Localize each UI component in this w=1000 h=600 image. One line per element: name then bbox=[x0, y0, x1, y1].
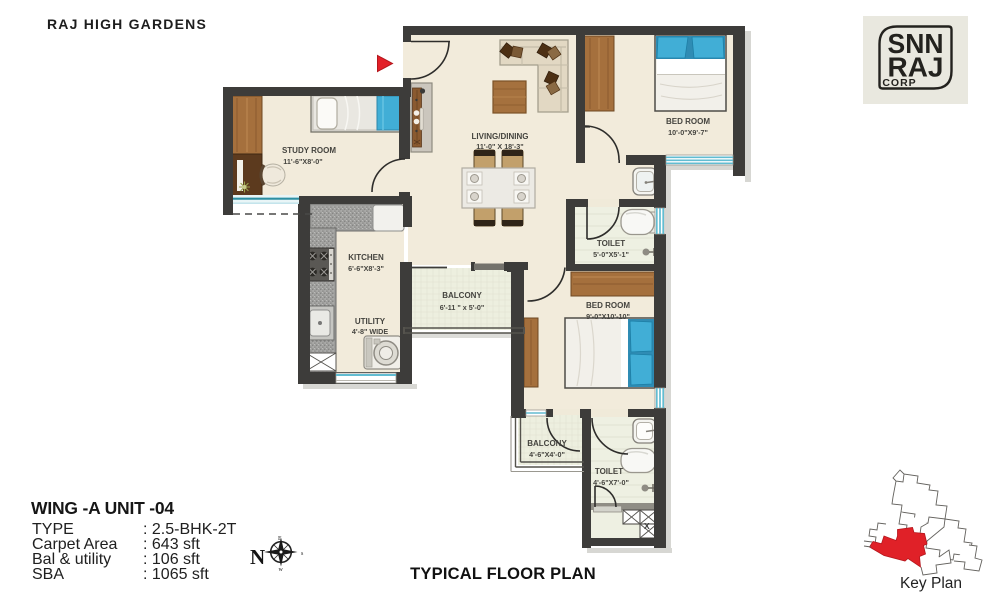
svg-text:BALCONY: BALCONY bbox=[527, 439, 567, 448]
svg-text:BALCONY: BALCONY bbox=[442, 291, 482, 300]
svg-text:4'-8" WIDE: 4'-8" WIDE bbox=[352, 327, 388, 336]
svg-text:9'-0"X10'-10": 9'-0"X10'-10" bbox=[586, 312, 630, 321]
svg-text:: 1065 sft: : 1065 sft bbox=[143, 566, 209, 583]
svg-text:TOILET: TOILET bbox=[597, 239, 625, 248]
svg-text:X: X bbox=[644, 521, 650, 531]
svg-text:5'-0"X5'-1": 5'-0"X5'-1" bbox=[593, 250, 629, 259]
svg-text:UTILITY: UTILITY bbox=[355, 317, 386, 326]
svg-text:11'-6"X8'-0": 11'-6"X8'-0" bbox=[283, 157, 322, 166]
svg-text:STUDY ROOM: STUDY ROOM bbox=[282, 146, 336, 155]
svg-text:RAJ HIGH GARDENS: RAJ HIGH GARDENS bbox=[47, 16, 207, 32]
svg-text:LIVING/DINING: LIVING/DINING bbox=[472, 132, 529, 141]
svg-text:CORP: CORP bbox=[882, 77, 916, 89]
svg-text:11'-0" X 18'-3": 11'-0" X 18'-3" bbox=[476, 142, 523, 151]
svg-text:4'-6"X4'-0": 4'-6"X4'-0" bbox=[529, 450, 565, 459]
svg-text:TOILET: TOILET bbox=[595, 467, 623, 476]
svg-text:N: N bbox=[250, 545, 265, 569]
svg-text:BED ROOM: BED ROOM bbox=[586, 301, 630, 310]
svg-text:BED ROOM: BED ROOM bbox=[666, 117, 710, 126]
svg-text:Key Plan: Key Plan bbox=[900, 575, 962, 592]
svg-text:KITCHEN: KITCHEN bbox=[348, 253, 384, 262]
svg-text:4'-6"X7'-0": 4'-6"X7'-0" bbox=[593, 478, 629, 487]
svg-text:TYPICAL FLOOR PLAN: TYPICAL FLOOR PLAN bbox=[410, 565, 596, 583]
svg-text:10'-0"X9'-7": 10'-0"X9'-7" bbox=[668, 128, 708, 137]
svg-text:w: w bbox=[279, 567, 284, 573]
svg-text:SBA: SBA bbox=[32, 566, 64, 583]
svg-text:6'-6"X8'-3": 6'-6"X8'-3" bbox=[348, 264, 384, 273]
svg-text:E: E bbox=[278, 536, 282, 542]
svg-text:WING -A UNIT -04: WING -A UNIT -04 bbox=[31, 498, 174, 518]
svg-text:6'-11 " x 5'-0": 6'-11 " x 5'-0" bbox=[440, 303, 485, 312]
